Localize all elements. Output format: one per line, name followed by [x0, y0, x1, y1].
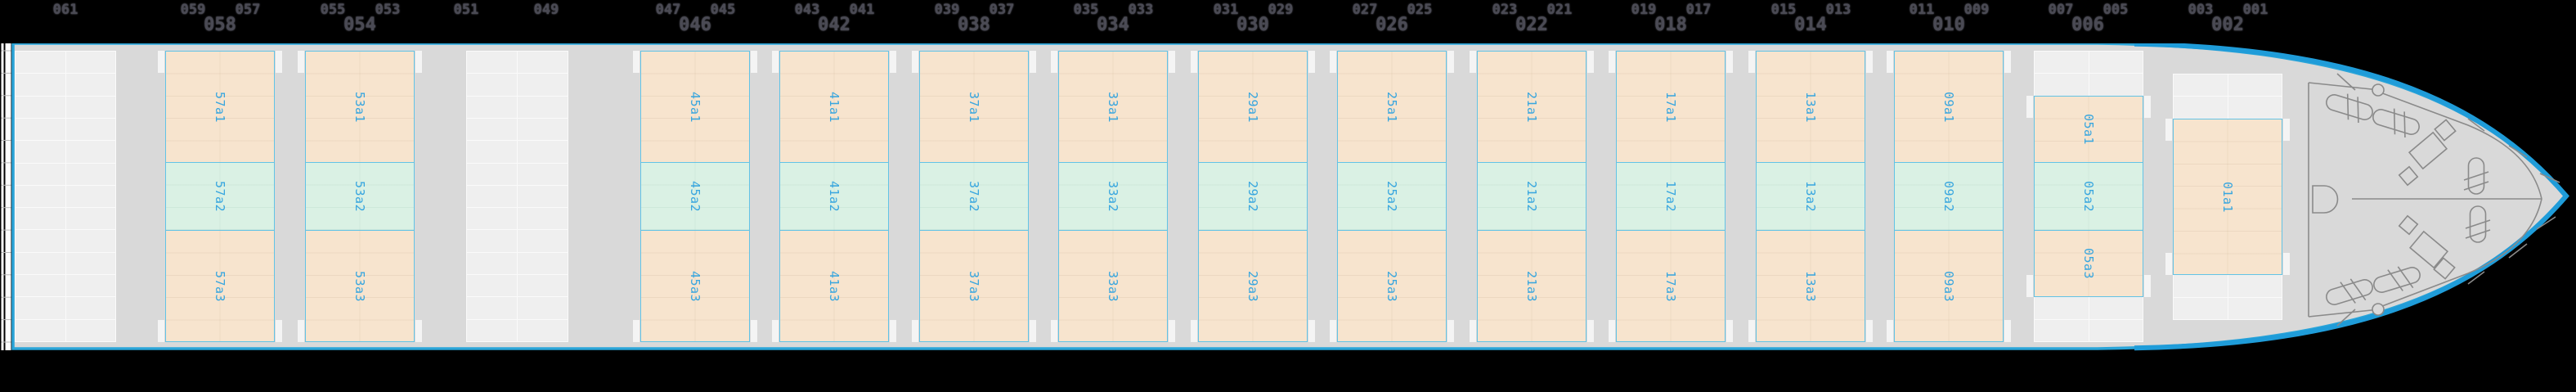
cargo-slot-41a3[interactable]: 41a3 [779, 230, 889, 342]
corner-tab [1609, 320, 1615, 342]
corner-tab [1191, 51, 1197, 73]
cargo-slot-13a2[interactable]: 13a2 [1756, 162, 1865, 231]
cargo-slot-17a3[interactable]: 17a3 [1616, 230, 1726, 342]
cargo-slot-33a2[interactable]: 33a2 [1058, 162, 1168, 231]
cargo-slot-label: 21a3 [1524, 270, 1539, 301]
empty-slot-cell [16, 74, 65, 95]
corner-tab [415, 51, 422, 73]
cargo-slot-label: 25a2 [1384, 181, 1399, 212]
cargo-slot-45a1[interactable]: 45a1 [640, 51, 750, 163]
empty-slot-cell [66, 186, 116, 207]
deck: 57a157a257a353a153a253a345a145a245a341a1… [0, 0, 2576, 392]
slot-number-label: 003 [2188, 3, 2214, 17]
empty-slot-cell [66, 141, 116, 162]
empty-slot-cell [467, 253, 517, 274]
cargo-slot-29a3[interactable]: 29a3 [1198, 230, 1308, 342]
empty-slot-cell [518, 297, 568, 318]
empty-slot-cell [518, 97, 568, 118]
empty-slot-cell [16, 186, 65, 207]
empty-slot-cell [518, 275, 568, 296]
corner-tab [276, 51, 282, 73]
corner-tab [890, 320, 896, 342]
cargo-slot-37a3[interactable]: 37a3 [919, 230, 1029, 342]
corner-tab [1030, 51, 1036, 73]
slot-number-label: 019 [1631, 3, 1657, 17]
cargo-slot-21a2[interactable]: 21a2 [1477, 162, 1586, 231]
cargo-slot-label: 09a3 [1941, 270, 1956, 301]
cargo-slot-label: 57a2 [213, 181, 227, 212]
cargo-slot-label: 41a1 [827, 91, 841, 122]
bay-number-label: 034 [1097, 16, 1129, 34]
corner-tab [298, 320, 304, 342]
empty-slot-cell [467, 230, 517, 251]
cargo-slot-05a1[interactable]: 05a1 [2034, 96, 2143, 163]
slot-number-label: 017 [1686, 3, 1712, 17]
slot-number-label: 037 [990, 3, 1015, 17]
cargo-slot-label: 17a2 [1663, 181, 1678, 212]
cargo-slot-41a1[interactable]: 41a1 [779, 51, 889, 163]
cargo-slot-label: 37a3 [967, 270, 981, 301]
slot-number-label: 001 [2243, 3, 2269, 17]
cargo-slot-label: 13a2 [1803, 181, 1818, 212]
corner-tab [1726, 320, 1733, 342]
empty-slot-cell [16, 141, 65, 162]
slot-number-label: 011 [1910, 3, 1935, 17]
corner-tab [1726, 51, 1733, 73]
cargo-slot-53a2[interactable]: 53a2 [305, 162, 415, 231]
empty-slot-cell [16, 52, 65, 73]
cargo-slot-53a3[interactable]: 53a3 [305, 230, 415, 342]
bay-034: 33a133a233a3 [1058, 0, 1168, 392]
bay-number-label: 022 [1515, 16, 1548, 34]
corner-tab [1866, 51, 1873, 73]
grid-061[interactable] [15, 0, 116, 392]
cargo-slot-53a1[interactable]: 53a1 [305, 51, 415, 163]
cargo-slot-label: 41a2 [827, 181, 841, 212]
cargo-slot-57a2[interactable]: 57a2 [165, 162, 275, 231]
empty-slot-cell [467, 320, 517, 341]
cargo-slot-25a1[interactable]: 25a1 [1337, 51, 1447, 163]
bay-number-label: 058 [204, 16, 236, 34]
bay-022: 21a121a221a3 [1477, 0, 1586, 392]
slot-number-label: 005 [2103, 3, 2129, 17]
empty-slot-cell [518, 186, 568, 207]
corner-tab [1470, 320, 1476, 342]
cargo-slot-label: 53a3 [352, 270, 367, 301]
empty-slot-cell [2228, 298, 2282, 319]
slot-number-label: 039 [935, 3, 960, 17]
slot-number-label: 041 [850, 3, 875, 17]
empty-slot-cell [66, 97, 116, 118]
empty-slot-cell [2228, 97, 2282, 118]
cargo-slot-33a1[interactable]: 33a1 [1058, 51, 1168, 163]
slot-number-label: 021 [1547, 3, 1573, 17]
empty-slot-cell [518, 74, 568, 95]
empty-slot-cell [2035, 74, 2089, 95]
cargo-slot-21a1[interactable]: 21a1 [1477, 51, 1586, 163]
cargo-slot-37a1[interactable]: 37a1 [919, 51, 1029, 163]
cargo-slot-label: 37a1 [967, 91, 981, 122]
empty-slot-cell [66, 275, 116, 296]
empty-slot-cell [2174, 74, 2228, 96]
slot-number-label: 053 [375, 3, 401, 17]
corner-tab [1447, 320, 1454, 342]
bay-018: 17a117a217a3 [1616, 0, 1726, 392]
corner-tab [772, 51, 779, 73]
cargo-slot-label: 57a3 [213, 270, 227, 301]
corner-tab [2144, 96, 2151, 118]
empty-slot-cell [66, 119, 116, 140]
corner-tab [2283, 253, 2290, 275]
empty-slot-cell [2228, 275, 2282, 296]
corner-tab [633, 51, 640, 73]
stowage-plan-canvas: 57a157a257a353a153a253a345a145a245a341a1… [0, 0, 2576, 392]
empty-cell-grid [466, 51, 568, 342]
cargo-slot-21a3[interactable]: 21a3 [1477, 230, 1586, 342]
slot-number-label: 055 [321, 3, 346, 17]
empty-slot-cell [66, 74, 116, 95]
corner-tab [1748, 51, 1755, 73]
empty-slot-cell [2035, 320, 2089, 341]
empty-slot-cell [518, 141, 568, 162]
empty-slot-cell [66, 253, 116, 274]
cargo-slot-label: 17a1 [1663, 91, 1678, 122]
corner-tab [2165, 119, 2172, 141]
cargo-slot-label: 57a1 [213, 91, 227, 122]
cargo-slot-33a3[interactable]: 33a3 [1058, 230, 1168, 342]
bay-number-label: 014 [1794, 16, 1827, 34]
cargo-slot-label: 09a2 [1941, 181, 1956, 212]
empty-slot-cell [2035, 297, 2089, 318]
slot-number-label: 043 [795, 3, 820, 17]
bay-number-label: 002 [2211, 16, 2244, 34]
cargo-slot-label: 13a1 [1803, 91, 1818, 122]
corner-tab [1587, 320, 1594, 342]
bay-number-label: 010 [1932, 16, 1965, 34]
empty-slot-cell [467, 141, 517, 162]
slot-number-label: 009 [1964, 3, 1990, 17]
corner-tab [1470, 51, 1476, 73]
corner-tab [1169, 51, 1175, 73]
cargo-slot-label: 29a2 [1245, 181, 1260, 212]
corner-tab [1887, 51, 1893, 73]
corner-tab [751, 320, 757, 342]
slot-number-label: 023 [1492, 3, 1518, 17]
cargo-slot-05a2[interactable]: 05a2 [2034, 162, 2143, 231]
empty-slot-cell [16, 297, 65, 318]
empty-slot-cell [16, 253, 65, 274]
cargo-slot-25a3[interactable]: 25a3 [1337, 230, 1447, 342]
slot-number-label: 051 [454, 3, 479, 17]
bay-010: 09a109a209a3 [1894, 0, 2004, 392]
empty-slot-cell [518, 52, 568, 73]
empty-slot-cell [467, 52, 517, 73]
empty-slot-cell [2228, 74, 2282, 96]
empty-slot-cell [518, 164, 568, 185]
cargo-slot-label: 45a3 [688, 270, 702, 301]
bay-038: 37a137a237a3 [919, 0, 1029, 392]
corner-tab [1330, 51, 1336, 73]
cargo-slot-label: 45a1 [688, 91, 702, 122]
cargo-slot-17a1[interactable]: 17a1 [1616, 51, 1726, 163]
corner-tab [1051, 51, 1057, 73]
cargo-slot-45a3[interactable]: 45a3 [640, 230, 750, 342]
corner-tab [1887, 320, 1893, 342]
bay-number-label: 006 [2071, 16, 2104, 34]
grid-050[interactable] [466, 0, 568, 392]
bay-number-label: 030 [1236, 16, 1269, 34]
corner-tab [276, 320, 282, 342]
slot-number-label: 027 [1353, 3, 1378, 17]
empty-slot-cell [2174, 275, 2228, 296]
slot-number-label: 031 [1214, 3, 1239, 17]
bay-054: 53a153a253a3 [305, 0, 415, 392]
empty-slot-cell [2174, 298, 2228, 319]
cargo-slot-label: 33a3 [1106, 270, 1120, 301]
cargo-slot-05a3[interactable]: 05a3 [2034, 230, 2143, 297]
empty-slot-cell [467, 164, 517, 185]
corner-tab [1030, 320, 1036, 342]
corner-tab [158, 320, 164, 342]
empty-slot-cell [66, 320, 116, 341]
corner-tab [2026, 96, 2033, 118]
slot-number-label: 033 [1129, 3, 1154, 17]
cargo-slot-label: 33a1 [1106, 91, 1120, 122]
slot-number-label: 025 [1407, 3, 1433, 17]
cargo-slot-label: 09a1 [1941, 91, 1956, 122]
cargo-slot-label: 41a3 [827, 270, 841, 301]
cargo-slot-label: 29a1 [1245, 91, 1260, 122]
empty-slot-cell [518, 119, 568, 140]
corner-tab [890, 51, 896, 73]
corner-tab [298, 51, 304, 73]
empty-slot-cell [16, 320, 65, 341]
cargo-slot-label: 01a1 [2220, 181, 2235, 212]
cargo-slot-13a1[interactable]: 13a1 [1756, 51, 1865, 163]
corner-tab [1308, 320, 1315, 342]
cargo-slot-label: 25a1 [1384, 91, 1399, 122]
corner-tab [2004, 320, 2011, 342]
empty-slot-cell [66, 297, 116, 318]
corner-tab [1866, 320, 1873, 342]
cargo-slot-13a3[interactable]: 13a3 [1756, 230, 1865, 342]
slot-number-label: 013 [1826, 3, 1851, 17]
empty-slot-cell [2089, 52, 2143, 73]
bay-042: 41a141a241a3 [779, 0, 889, 392]
cargo-slot-label: 53a2 [352, 181, 367, 212]
cargo-slot-45a2[interactable]: 45a2 [640, 162, 750, 231]
cargo-slot-label: 05a2 [2081, 181, 2096, 212]
empty-slot-cell [467, 275, 517, 296]
empty-slot-cell [467, 208, 517, 229]
corner-tab [1447, 51, 1454, 73]
slot-number-label: 029 [1268, 3, 1294, 17]
empty-slot-cell [518, 230, 568, 251]
slot-number-label: 057 [236, 3, 261, 17]
bay-number-label: 018 [1654, 16, 1687, 34]
cargo-slot-09a1[interactable]: 09a1 [1894, 51, 2004, 163]
bay-number-label: 038 [958, 16, 990, 34]
corner-tab [1308, 51, 1315, 73]
empty-slot-cell [2035, 52, 2089, 73]
empty-slot-cell [66, 230, 116, 251]
corner-tab [2004, 51, 2011, 73]
empty-slot-cell [2089, 74, 2143, 95]
cargo-slot-17a2[interactable]: 17a2 [1616, 162, 1726, 231]
cargo-slot-25a2[interactable]: 25a2 [1337, 162, 1447, 231]
slot-number-label: 061 [53, 3, 79, 17]
cargo-slot-label: 05a3 [2081, 248, 2096, 279]
corner-tab [2165, 253, 2172, 275]
empty-slot-cell [2174, 97, 2228, 118]
cargo-slot-29a2[interactable]: 29a2 [1198, 162, 1308, 231]
corner-tab [158, 51, 164, 73]
empty-slot-cell [16, 164, 65, 185]
cargo-slot-label: 37a2 [967, 181, 981, 212]
cargo-slot-label: 53a1 [352, 91, 367, 122]
empty-slot-cell [16, 208, 65, 229]
slot-number-label: 007 [2049, 3, 2074, 17]
cargo-slot-label: 45a2 [688, 181, 702, 212]
empty-slot-cell [518, 208, 568, 229]
cargo-slot-label: 21a2 [1524, 181, 1539, 212]
bay-number-label: 046 [679, 16, 711, 34]
bay-006: 05a105a205a3 [2034, 0, 2143, 392]
corner-tab [2144, 275, 2151, 297]
bay-014: 13a113a213a3 [1756, 0, 1865, 392]
empty-slot-cell [66, 208, 116, 229]
empty-slot-cell [518, 253, 568, 274]
corner-tab [1051, 320, 1057, 342]
empty-slot-cell [2089, 297, 2143, 318]
empty-slot-cell [467, 74, 517, 95]
bay-number-label: 042 [818, 16, 850, 34]
corner-tab [2026, 275, 2033, 297]
empty-slot-cell [467, 97, 517, 118]
corner-tab [772, 320, 779, 342]
empty-slot-cell [518, 320, 568, 341]
empty-slot-cell [66, 164, 116, 185]
bay-002: 01a1 [2173, 0, 2282, 392]
corner-tab [1609, 51, 1615, 73]
cargo-slot-41a2[interactable]: 41a2 [779, 162, 889, 231]
empty-slot-cell [16, 275, 65, 296]
empty-slot-cell [467, 186, 517, 207]
cargo-slot-label: 33a2 [1106, 181, 1120, 212]
cargo-slot-09a2[interactable]: 09a2 [1894, 162, 2004, 231]
slot-number-label: 047 [656, 3, 681, 17]
cargo-slot-01a1[interactable]: 01a1 [2173, 119, 2282, 275]
cargo-slot-29a1[interactable]: 29a1 [1198, 51, 1308, 163]
cargo-slot-37a2[interactable]: 37a2 [919, 162, 1029, 231]
slot-number-label: 035 [1074, 3, 1099, 17]
empty-cell-grid [15, 51, 116, 342]
corner-tab [1330, 320, 1336, 342]
cargo-slot-label: 13a3 [1803, 270, 1818, 301]
corner-tab [751, 51, 757, 73]
corner-tab [912, 320, 918, 342]
slot-number-label: 045 [711, 3, 736, 17]
top-axis: 0610590570550530510490470450430410390370… [0, 0, 2576, 43]
bay-058: 57a157a257a3 [165, 0, 275, 392]
cargo-slot-57a1[interactable]: 57a1 [165, 51, 275, 163]
corner-tab [1191, 320, 1197, 342]
corner-tab [912, 51, 918, 73]
slot-number-label: 015 [1771, 3, 1797, 17]
corner-tab [1587, 51, 1594, 73]
cargo-slot-label: 21a1 [1524, 91, 1539, 122]
empty-slot-cell [16, 230, 65, 251]
empty-slot-cell [467, 119, 517, 140]
corner-tab [1748, 320, 1755, 342]
cargo-slot-57a3[interactable]: 57a3 [165, 230, 275, 342]
corner-tab [1169, 320, 1175, 342]
slot-number-label: 059 [181, 3, 206, 17]
corner-tab [415, 320, 422, 342]
cargo-slot-09a3[interactable]: 09a3 [1894, 230, 2004, 342]
corner-tab [2283, 119, 2290, 141]
bay-number-label: 054 [343, 16, 376, 34]
corner-tab [633, 320, 640, 342]
bay-046: 45a145a245a3 [640, 0, 750, 392]
slot-number-label: 049 [534, 3, 559, 17]
empty-slot-cell [16, 119, 65, 140]
empty-slot-cell [2089, 320, 2143, 341]
empty-slot-cell [66, 52, 116, 73]
cargo-slot-label: 29a3 [1245, 270, 1260, 301]
cargo-slot-label: 25a3 [1384, 270, 1399, 301]
bay-030: 29a129a229a3 [1198, 0, 1308, 392]
cargo-slot-label: 17a3 [1663, 270, 1678, 301]
bay-number-label: 026 [1376, 16, 1408, 34]
bay-026: 25a125a225a3 [1337, 0, 1447, 392]
empty-slot-cell [467, 297, 517, 318]
empty-slot-cell [16, 97, 65, 118]
cargo-slot-label: 05a1 [2081, 114, 2096, 145]
